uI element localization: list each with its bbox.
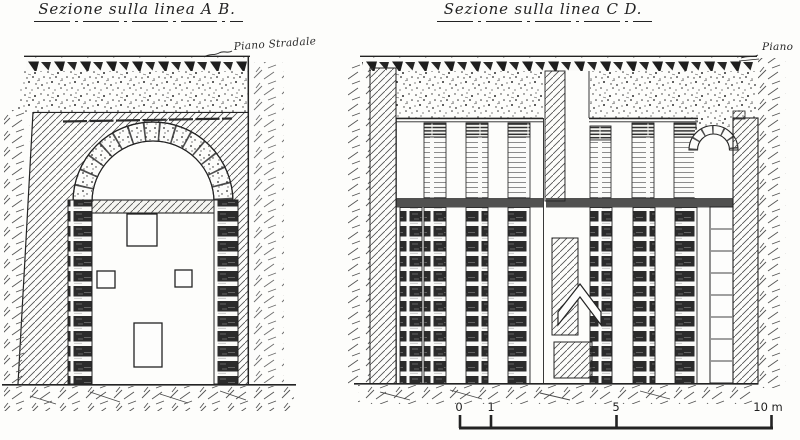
scale-label-0: 0 — [455, 400, 462, 414]
outer-wall-right — [733, 118, 758, 384]
cobble-band — [26, 57, 248, 71]
scale-label-5: 5 — [612, 400, 619, 414]
pilaster-cap — [674, 123, 696, 137]
block-pier — [400, 208, 422, 384]
scale-bar: 0 1 5 10 m — [455, 400, 782, 428]
terrain-left — [348, 64, 370, 384]
terrain-right — [758, 58, 786, 388]
pilaster-shaft — [424, 137, 446, 198]
impost-band — [396, 198, 543, 208]
block-pier — [590, 208, 612, 384]
hatched-block — [554, 342, 592, 378]
section-ab-title: Sezione sulla linea A B. — [38, 0, 235, 18]
pier-left — [68, 200, 92, 384]
ground-texture — [4, 386, 294, 411]
ground-texture — [358, 385, 754, 404]
block-pier — [675, 208, 697, 384]
section-cd: Sezione sulla linea C D. — [348, 0, 793, 404]
niche — [97, 271, 115, 288]
block-pier — [466, 208, 488, 384]
pier-right — [214, 200, 238, 384]
terrain-right — [252, 62, 284, 383]
section-cd-title: Sezione sulla linea C D. — [444, 0, 642, 18]
pilaster-shaft — [508, 137, 530, 198]
ashlar-column — [710, 207, 733, 383]
scale-label-10m: 10 m — [753, 400, 783, 414]
pilaster-cap — [466, 123, 488, 137]
pilaster-cap — [590, 126, 611, 140]
engraving-plate: Sezione sulla linea A B. — [0, 0, 800, 440]
scale-label-1: 1 — [487, 400, 494, 414]
divider-strip-upper — [545, 71, 565, 201]
block-pier — [633, 208, 655, 384]
section-drawing-canvas: Sezione sulla linea A B. — [0, 0, 800, 440]
rubble-band — [396, 71, 543, 118]
street-level-label: Piano Stradale — [232, 35, 316, 53]
channel-gap — [565, 71, 589, 198]
section-ab: Sezione sulla linea A B. — [2, 0, 317, 411]
pilaster-cap — [508, 123, 530, 137]
lintel-hatch — [90, 200, 216, 213]
rubble-band — [16, 71, 248, 112]
street-level-label: Piano — [761, 41, 793, 53]
block-pier — [424, 208, 446, 384]
niche — [134, 323, 162, 367]
outer-wall-left — [370, 68, 396, 384]
cobble-band — [362, 57, 755, 71]
pilaster-shaft — [632, 137, 654, 198]
pilaster-cap — [424, 123, 446, 137]
terrain-left — [4, 110, 30, 385]
pilaster-cap — [632, 123, 654, 137]
divider-strip-lower — [552, 238, 578, 335]
niche — [127, 214, 157, 246]
pilaster-shaft — [466, 137, 488, 198]
impost-band — [546, 198, 733, 208]
pilaster-shaft — [590, 140, 611, 198]
niche — [175, 270, 192, 287]
rubble-band — [590, 71, 732, 118]
block-pier — [508, 208, 530, 384]
